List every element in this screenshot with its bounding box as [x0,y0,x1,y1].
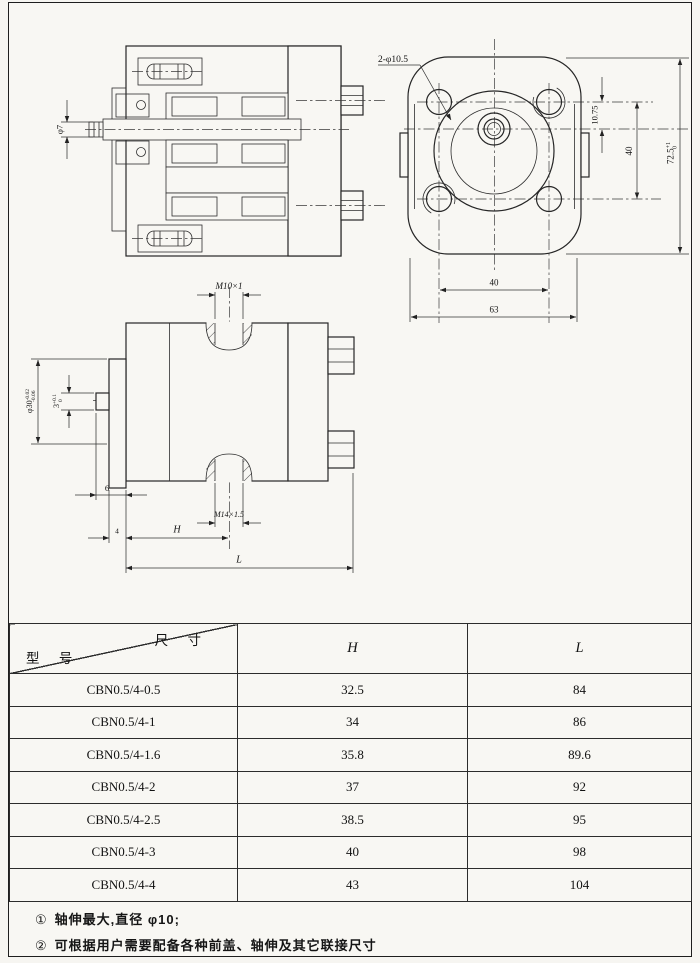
model-cell: CBN0.5/4-4 [10,869,238,902]
svg-text:φ30-0.02-0.06: φ30-0.02-0.06 [25,389,37,413]
table-corner-cell: 尺 寸 型 号 [10,624,238,674]
svg-text:3+0.10: 3+0.10 [52,394,64,408]
dim-hole-pitch-vertical: 40 [624,103,637,199]
column-header-H: H [238,624,468,674]
bottom-port-label: M14×1.5 [213,510,244,519]
rear-cover [288,323,328,481]
table-row: CBN0.5/4-4 43 104 [10,869,692,902]
pump-housing [126,323,288,481]
dim-flange-and-H: 4 H [88,490,228,573]
H-cell: 40 [238,836,468,869]
H-cell: 43 [238,869,468,902]
front-view: 2-φ10.5 10.75 40 72.5+10 40 [378,39,689,323]
model-cell: CBN0.5/4-3 [10,836,238,869]
front-cover-flange [109,359,126,488]
dim-overall-length: L [126,473,353,573]
table-row: CBN0.5/4-1.6 35.8 89.6 [10,739,692,772]
L-dim-label: L [235,555,242,566]
shaft-stub [96,393,109,410]
dimension-table: 尺 寸 型 号 H L CBN0.5/4-0.5 32.5 84 CBN0.5/… [9,623,692,902]
hole-pitch-h-label: 40 [490,278,500,288]
L-cell: 104 [468,869,692,902]
H-cell: 37 [238,771,468,804]
footnote-1-marker: ① [35,912,48,927]
H-cell: 35.8 [238,739,468,772]
height-tol-upper: +1 [666,142,672,148]
corner-size-label: 尺 寸 [155,629,209,649]
table-row: CBN0.5/4-3 40 98 [10,836,692,869]
L-cell: 98 [468,836,692,869]
dim-spigot-diameter: φ30-0.02-0.06 [25,359,107,444]
L-cell: 84 [468,674,692,707]
H-cell: 38.5 [238,804,468,837]
model-cell: CBN0.5/4-1.6 [10,739,238,772]
spigot-tol-lower: -0.06 [31,390,37,402]
footnote-2-marker: ② [35,938,48,953]
shaft-seal-upper [116,94,149,117]
L-cell: 92 [468,771,692,804]
H-dim-label: H [172,525,181,536]
footnote-1-text: 轴伸最大,直径 φ10; [55,912,180,927]
right-ear [581,133,589,177]
side-bolt-lower [328,431,354,468]
side-bolt-upper [328,337,354,374]
left-ear [400,133,408,177]
top-port-label: M10×1 [214,281,242,291]
height-tol-lower: 0 [673,146,679,149]
table-row: CBN0.5/4-2.5 38.5 95 [10,804,692,837]
section-view: φ7 [55,46,388,256]
model-cell: CBN0.5/4-2.5 [10,804,238,837]
H-cell: 32.5 [238,674,468,707]
dim-top-port: M10×1 [197,281,261,319]
footnote-1: ①轴伸最大,直径 φ10; [35,909,691,928]
spigot-length-label: 6 [105,483,109,493]
L-cell: 86 [468,706,692,739]
height-dim-label: 72.5 [666,148,676,164]
table-row: CBN0.5/4-2 37 92 [10,771,692,804]
offset-dim-label: 10.75 [590,105,600,124]
dim-hole-offset: 10.75 [590,77,603,153]
side-view: M10×1 M14×1.5 φ30-0.02-0.06 3+0.10 [25,281,354,573]
footnote-2-text: 可根据用户需要配备各种前盖、轴伸及其它联接尺寸 [55,938,377,953]
pump-technical-drawing: φ7 2-φ10.5 [9,3,691,623]
L-cell: 95 [468,804,692,837]
table-row: CBN0.5/4-0.5 32.5 84 [10,674,692,707]
footnote-2: ②可根据用户需要配备各种前盖、轴伸及其它联接尺寸 [35,935,691,954]
L-cell: 89.6 [468,739,692,772]
hole-pitch-v-label: 40 [624,146,634,156]
dim-key-width: 3+0.10 [52,375,94,428]
column-header-L: L [468,624,692,674]
dim-bottom-port: M14×1.5 [197,483,261,527]
model-cell: CBN0.5/4-0.5 [10,674,238,707]
model-cell: CBN0.5/4-1 [10,706,238,739]
phi7-label: φ7 [55,125,65,134]
svg-text:72.5+10: 72.5+10 [666,142,679,164]
holes-callout-label: 2-φ10.5 [378,55,408,65]
scanned-catalog-page: { "drawing": { "section_view": { "shaft_… [0,0,700,963]
table-header-row: 尺 寸 型 号 H L [10,624,692,674]
flange-thickness-label: 4 [115,527,119,536]
width-dim-label: 63 [490,305,500,315]
key-tol-lower: 0 [58,399,64,402]
H-cell: 34 [238,706,468,739]
corner-model-label: 型 号 [26,647,80,667]
shaft-seal-lower [116,141,149,164]
drawing-sheet-frame: φ7 2-φ10.5 [8,2,692,957]
model-cell: CBN0.5/4-2 [10,771,238,804]
table-row: CBN0.5/4-1 34 86 [10,706,692,739]
front-boss-outer [434,91,554,211]
footnotes: ①轴伸最大,直径 φ10; ②可根据用户需要配备各种前盖、轴伸及其它联接尺寸 [9,901,691,957]
dim-hole-pitch-horizontal: 40 [440,278,548,291]
